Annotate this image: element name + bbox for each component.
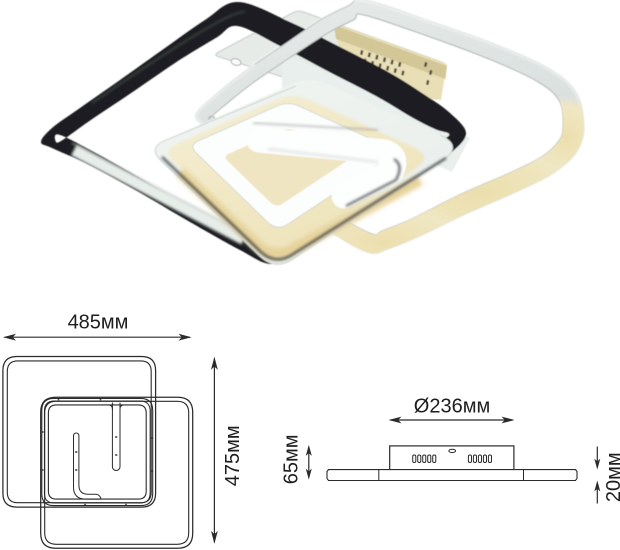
svg-text:Ø236мм: Ø236мм — [414, 395, 490, 417]
svg-text:20мм: 20мм — [603, 452, 620, 502]
svg-text:65мм: 65мм — [280, 435, 302, 485]
svg-text:485мм: 485мм — [68, 312, 129, 334]
svg-text:475мм: 475мм — [222, 425, 244, 486]
